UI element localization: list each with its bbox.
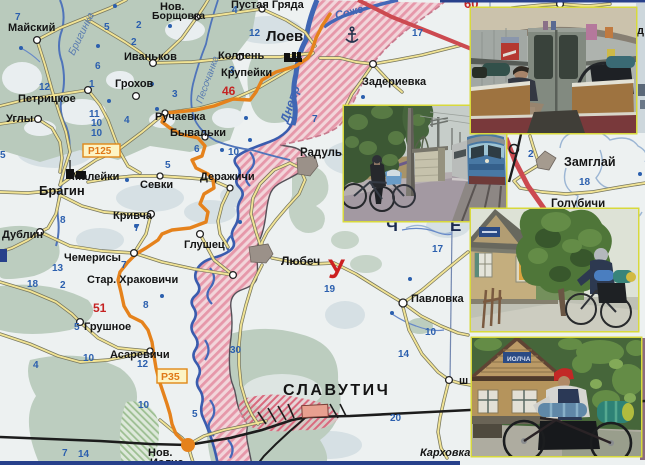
- svg-text:Грушное: Грушное: [84, 321, 131, 333]
- svg-text:4: 4: [33, 360, 39, 371]
- svg-text:18: 18: [27, 279, 39, 290]
- svg-text:Майский: Майский: [8, 22, 55, 34]
- svg-text:2: 2: [131, 37, 137, 48]
- svg-text:Петрицкое: Петрицкое: [18, 93, 76, 105]
- svg-text:Малейки: Малейки: [72, 171, 119, 183]
- svg-text:10: 10: [228, 147, 240, 158]
- svg-text:Кривча: Кривча: [113, 210, 153, 222]
- svg-text:7: 7: [121, 260, 127, 271]
- svg-text:Любеч: Любеч: [281, 254, 320, 268]
- svg-text:Замглай: Замглай: [564, 155, 616, 169]
- svg-text:Задериевка: Задериевка: [362, 76, 427, 88]
- svg-text:Глушец: Глушец: [184, 239, 225, 251]
- svg-text:17: 17: [432, 244, 444, 255]
- svg-text:Р125: Р125: [88, 146, 112, 157]
- svg-text:Деражичи: Деражичи: [200, 171, 255, 183]
- svg-text:5: 5: [0, 150, 6, 161]
- svg-text:СЛАВУТИЧ: СЛАВУТИЧ: [283, 382, 390, 399]
- svg-text:Асаревичи: Асаревичи: [110, 349, 170, 361]
- svg-text:Пустая Гряда: Пустая Гряда: [231, 0, 305, 11]
- svg-text:Радуль: Радуль: [300, 147, 342, 159]
- svg-text:Брагин: Брагин: [39, 183, 85, 198]
- svg-text:Бывальки: Бывальки: [170, 127, 226, 139]
- svg-text:Павловка: Павловка: [411, 293, 464, 305]
- svg-text:2: 2: [136, 20, 142, 31]
- svg-text:7: 7: [62, 448, 68, 459]
- svg-text:46: 46: [222, 84, 236, 98]
- svg-text:Грохов: Грохов: [115, 78, 154, 90]
- svg-text:5: 5: [165, 160, 171, 171]
- svg-text:17: 17: [412, 28, 424, 39]
- svg-text:10: 10: [91, 128, 103, 139]
- svg-text:У: У: [328, 254, 346, 284]
- svg-text:Крупейки: Крупейки: [221, 67, 272, 79]
- svg-text:ш: ш: [459, 375, 468, 387]
- svg-text:8: 8: [60, 215, 66, 226]
- svg-text:51: 51: [93, 301, 107, 315]
- svg-text:18: 18: [579, 177, 591, 188]
- svg-text:2: 2: [528, 149, 534, 160]
- svg-text:10: 10: [425, 327, 437, 338]
- svg-text:Ручаевка: Ручаевка: [155, 111, 206, 123]
- svg-text:5: 5: [74, 322, 80, 333]
- svg-text:Карховка: Карховка: [420, 447, 470, 459]
- svg-text:20: 20: [390, 413, 402, 424]
- svg-text:11: 11: [89, 109, 100, 120]
- svg-text:Севки: Севки: [140, 179, 173, 191]
- svg-text:Чемерисы: Чемерисы: [64, 252, 121, 264]
- svg-text:14: 14: [78, 449, 90, 460]
- svg-text:10: 10: [83, 353, 95, 364]
- svg-text:Иваньков: Иваньков: [124, 51, 177, 63]
- svg-text:10: 10: [138, 400, 150, 411]
- svg-text:13: 13: [52, 263, 64, 274]
- svg-text:8: 8: [143, 300, 149, 311]
- svg-text:Колпень: Колпень: [218, 50, 265, 62]
- svg-text:Борщовка: Борщовка: [152, 10, 205, 22]
- svg-text:Углы: Углы: [6, 113, 33, 125]
- svg-text:6: 6: [194, 144, 200, 155]
- svg-text:д: д: [637, 25, 644, 37]
- svg-text:4: 4: [124, 115, 130, 126]
- svg-text:Стар. Храковичи: Стар. Храковичи: [87, 274, 178, 286]
- svg-text:5: 5: [192, 409, 198, 420]
- svg-text:12: 12: [39, 82, 51, 93]
- svg-text:30: 30: [230, 345, 242, 356]
- svg-text:ИОЛЧА: ИОЛЧА: [507, 356, 531, 363]
- svg-text:Р35: Р35: [161, 371, 180, 383]
- svg-text:12: 12: [249, 28, 261, 39]
- svg-text:19: 19: [324, 284, 336, 295]
- svg-text:3: 3: [172, 89, 178, 100]
- svg-text:7: 7: [312, 114, 318, 125]
- svg-text:5: 5: [104, 22, 110, 33]
- svg-text:Дублин: Дублин: [2, 229, 43, 241]
- svg-text:14: 14: [398, 349, 410, 360]
- svg-text:2: 2: [60, 280, 66, 291]
- svg-text:6: 6: [95, 61, 101, 72]
- svg-text:Лоев: Лоев: [266, 28, 303, 45]
- svg-text:1: 1: [89, 79, 95, 90]
- svg-text:7: 7: [134, 223, 140, 234]
